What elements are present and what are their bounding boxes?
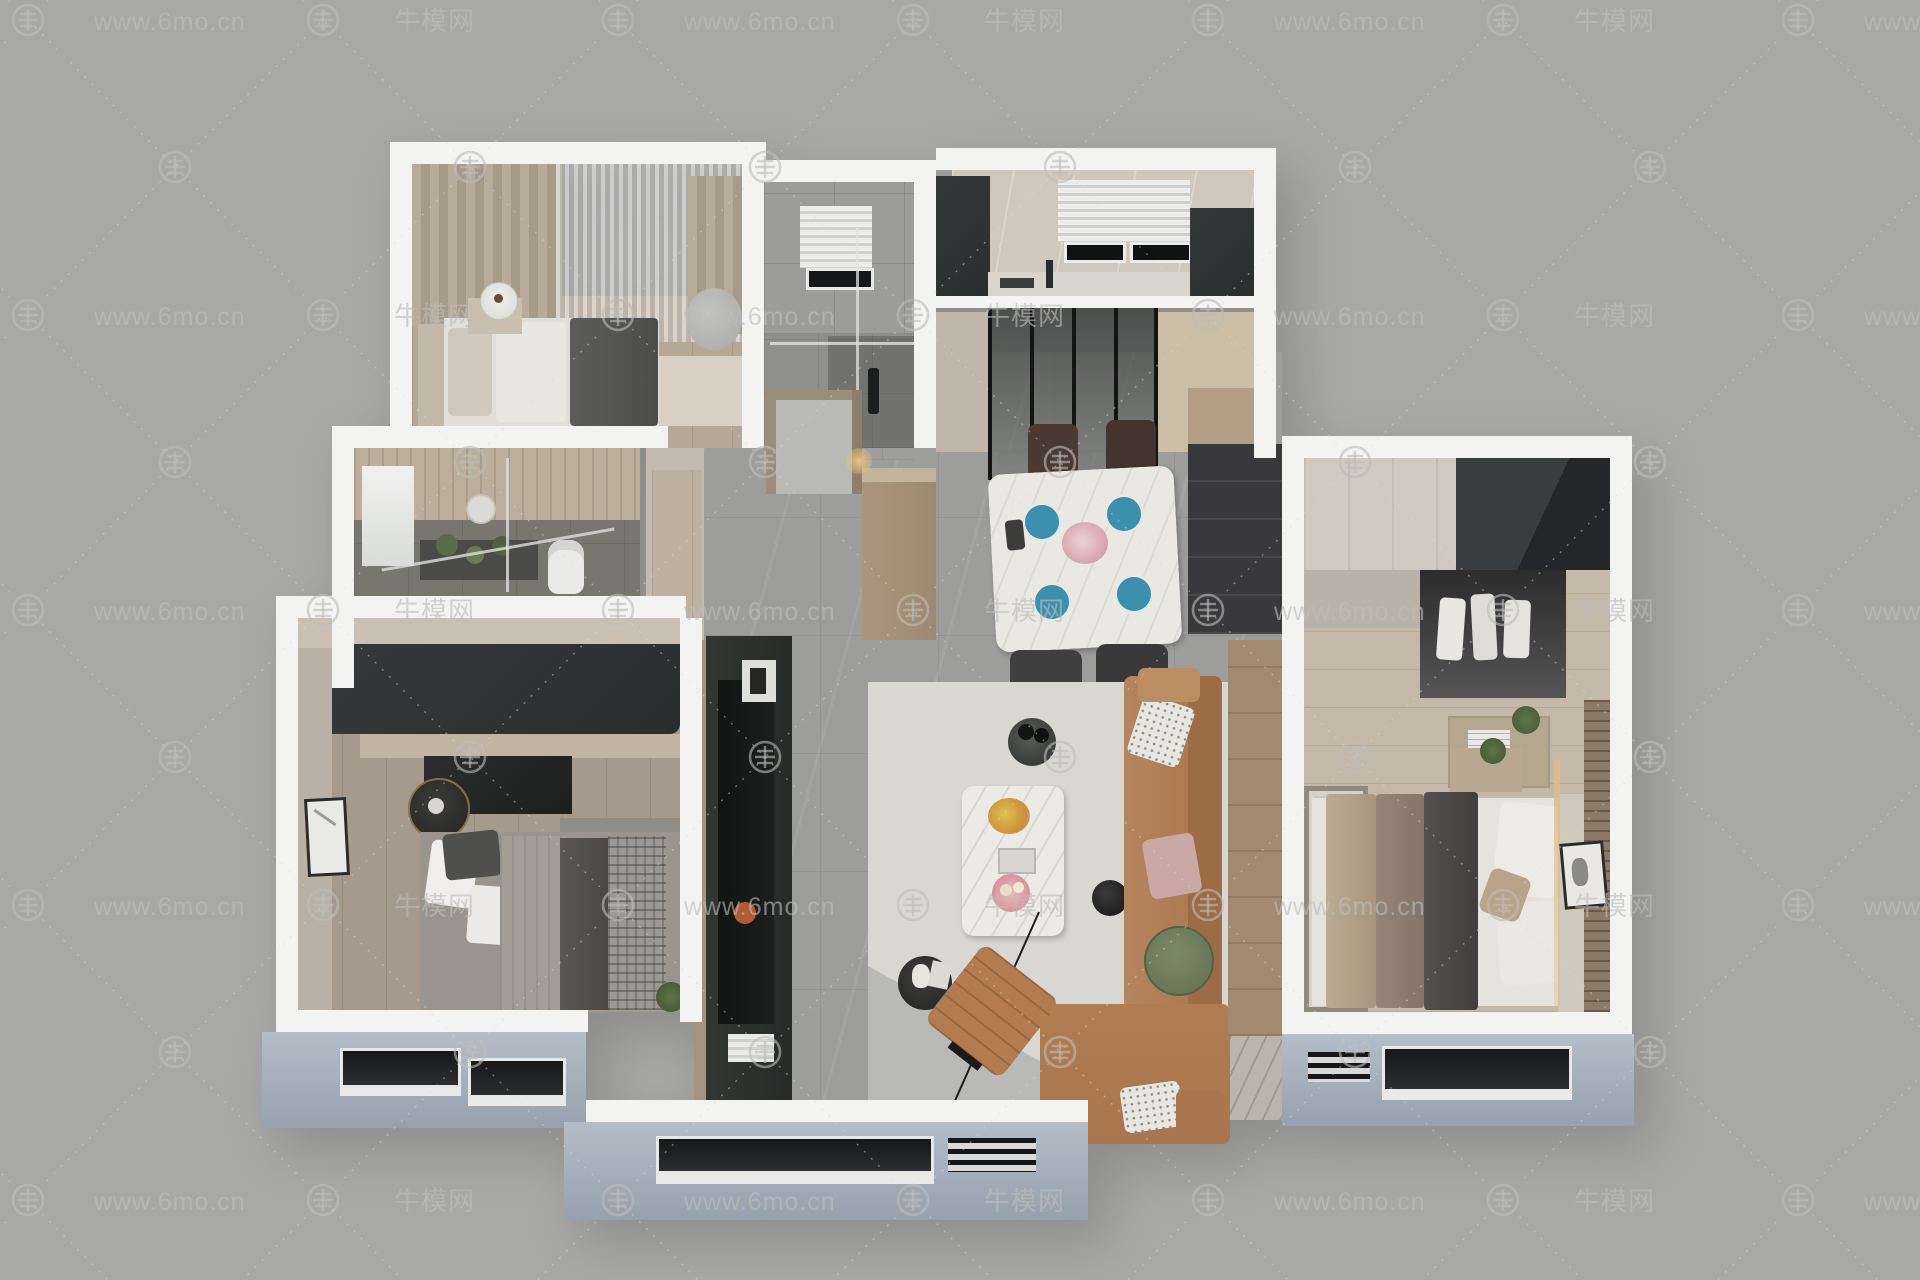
dining-wall-left xyxy=(936,312,988,452)
bedroom3-wardrobe xyxy=(332,644,680,734)
wall xyxy=(390,426,668,448)
stove xyxy=(1000,278,1034,288)
bedroom2-wall-face xyxy=(1304,570,1420,628)
door-frame-left xyxy=(766,390,776,494)
sideboard-dark xyxy=(1188,444,1282,634)
tv-panel xyxy=(718,680,774,1024)
bath1-window-blinds xyxy=(800,206,872,268)
table-tray xyxy=(998,848,1036,874)
wall xyxy=(276,596,686,618)
media-device-screen xyxy=(750,668,766,694)
bedroom2-wardrobe-dark xyxy=(1456,458,1610,570)
wall-art xyxy=(304,797,350,877)
window-sill xyxy=(340,1086,461,1096)
pillow-tan xyxy=(1176,1090,1224,1134)
pillow-tan xyxy=(1138,668,1200,702)
kitchen-window-blinds xyxy=(1058,180,1190,242)
wall xyxy=(390,142,766,164)
dessert xyxy=(1000,884,1012,896)
exterior-window xyxy=(340,1048,461,1088)
dessert xyxy=(1013,882,1024,893)
wall xyxy=(742,160,936,182)
plant xyxy=(436,534,458,556)
bedroom2-cabinet-light xyxy=(1304,458,1456,570)
flower-centerpiece xyxy=(1062,522,1108,564)
wall xyxy=(742,142,764,448)
duvet xyxy=(496,322,566,422)
toilet xyxy=(548,540,584,594)
door-opening xyxy=(776,400,852,494)
blanket-beige xyxy=(1326,794,1376,1008)
hanging-clothes xyxy=(1503,600,1531,659)
glass-door-frame xyxy=(988,300,992,480)
exterior-window-long xyxy=(656,1136,934,1174)
wall xyxy=(1610,436,1632,1034)
wall xyxy=(936,148,1276,170)
exterior-window xyxy=(468,1058,566,1098)
kitchen-window-right xyxy=(1130,242,1192,263)
wall xyxy=(680,618,702,1022)
window-sill xyxy=(1382,1090,1572,1100)
bedroom1-headboard xyxy=(418,324,444,426)
plant xyxy=(1512,706,1540,734)
entry-cabinet xyxy=(862,468,936,640)
hanging-clothes xyxy=(1436,597,1466,661)
kitchen-faucet xyxy=(1046,260,1053,288)
bath2-window-panel xyxy=(362,466,414,566)
wall xyxy=(332,426,354,688)
window-sill xyxy=(656,1172,934,1184)
exterior-louver-window xyxy=(948,1138,1036,1172)
mug xyxy=(1018,724,1034,740)
shower-frame-h xyxy=(770,342,914,345)
blanket-dark xyxy=(1424,792,1478,1010)
wall xyxy=(1254,148,1276,458)
headboard-light-strip xyxy=(1554,760,1560,1020)
mug xyxy=(1034,728,1049,743)
shower-frame xyxy=(506,458,509,592)
plant xyxy=(1480,738,1506,764)
dinner-plate xyxy=(1114,574,1154,614)
pillow xyxy=(448,328,492,416)
wall xyxy=(276,596,298,1032)
shower-fixture xyxy=(868,368,879,414)
sofa-back-console xyxy=(1228,640,1282,1036)
wall xyxy=(1282,436,1632,458)
hanging-clothes xyxy=(1470,593,1497,660)
book-stack xyxy=(728,1034,774,1062)
cabinet-lamp-glow xyxy=(846,448,872,474)
wine-bottle xyxy=(1004,519,1025,551)
door-frame-top xyxy=(766,390,862,400)
blanket-mauve xyxy=(1376,794,1424,1008)
wall xyxy=(564,1100,1088,1122)
duvet-gray xyxy=(500,836,566,1010)
blanket-checkered xyxy=(608,836,666,1010)
dinner-plate xyxy=(1104,494,1144,534)
wall xyxy=(1282,436,1304,1034)
marble-block xyxy=(1230,1036,1282,1120)
wardrobe-counter xyxy=(360,734,680,758)
nightstand-decor xyxy=(428,798,444,814)
door-frame-right xyxy=(852,390,862,494)
decor-orange xyxy=(734,902,756,924)
apartment-plan xyxy=(0,0,1920,1280)
exterior-louver-window xyxy=(1308,1052,1370,1082)
wall xyxy=(1282,1012,1632,1034)
wall xyxy=(390,142,412,448)
bedroom1-armchair xyxy=(686,288,742,350)
lamp-finial xyxy=(494,294,503,303)
kitchen-cabinet-left xyxy=(936,176,990,296)
window-sill xyxy=(468,1096,566,1106)
pillow-dark xyxy=(442,829,503,881)
flowers-yellow xyxy=(988,798,1030,834)
exterior-window xyxy=(1382,1046,1572,1092)
render-canvas: www.6mo.cn 牛模网 xyxy=(0,0,1920,1280)
kitchen-cabinet-right xyxy=(1190,208,1254,304)
side-table-green xyxy=(1144,926,1214,996)
side-table-black xyxy=(1008,718,1056,766)
bath1-window xyxy=(806,268,874,290)
wall xyxy=(936,296,1254,308)
dinner-plate xyxy=(1032,582,1072,622)
blanket-dark xyxy=(570,318,658,426)
ceiling-light xyxy=(466,494,496,524)
wall xyxy=(914,160,936,448)
pillow-pink xyxy=(1141,832,1203,900)
dinner-plate xyxy=(1022,502,1062,542)
blanket-dark xyxy=(560,838,612,1010)
kitchen-window-left xyxy=(1064,242,1126,263)
floor-lamp-head xyxy=(1092,880,1128,916)
wall xyxy=(276,1010,588,1032)
